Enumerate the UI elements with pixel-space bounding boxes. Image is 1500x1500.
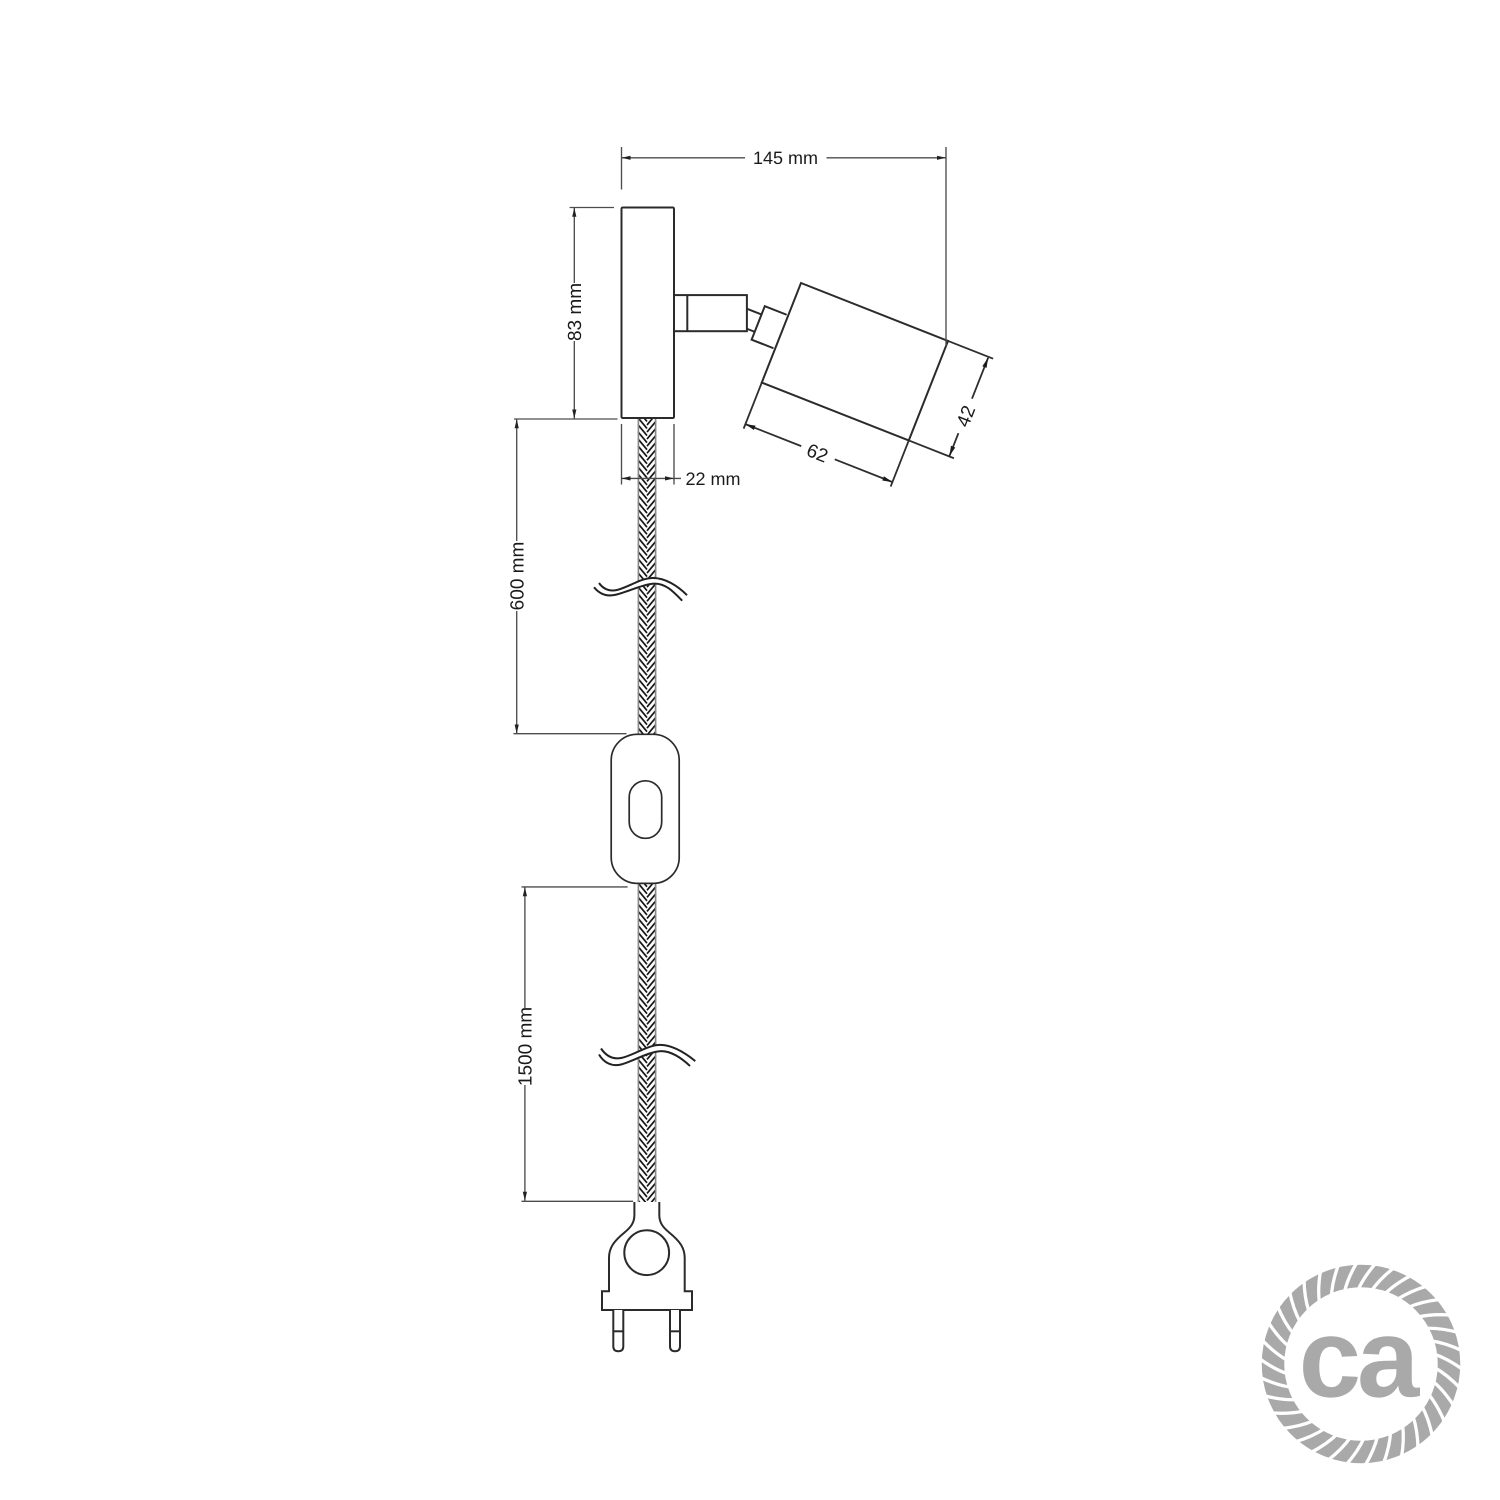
svg-text:600 mm: 600 mm: [507, 542, 528, 611]
svg-text:83 mm: 83 mm: [565, 283, 586, 341]
svg-text:22 mm: 22 mm: [686, 469, 741, 489]
svg-text:145 mm: 145 mm: [753, 148, 818, 168]
svg-text:1500 mm: 1500 mm: [516, 1007, 537, 1086]
svg-text:ca: ca: [1299, 1296, 1420, 1421]
